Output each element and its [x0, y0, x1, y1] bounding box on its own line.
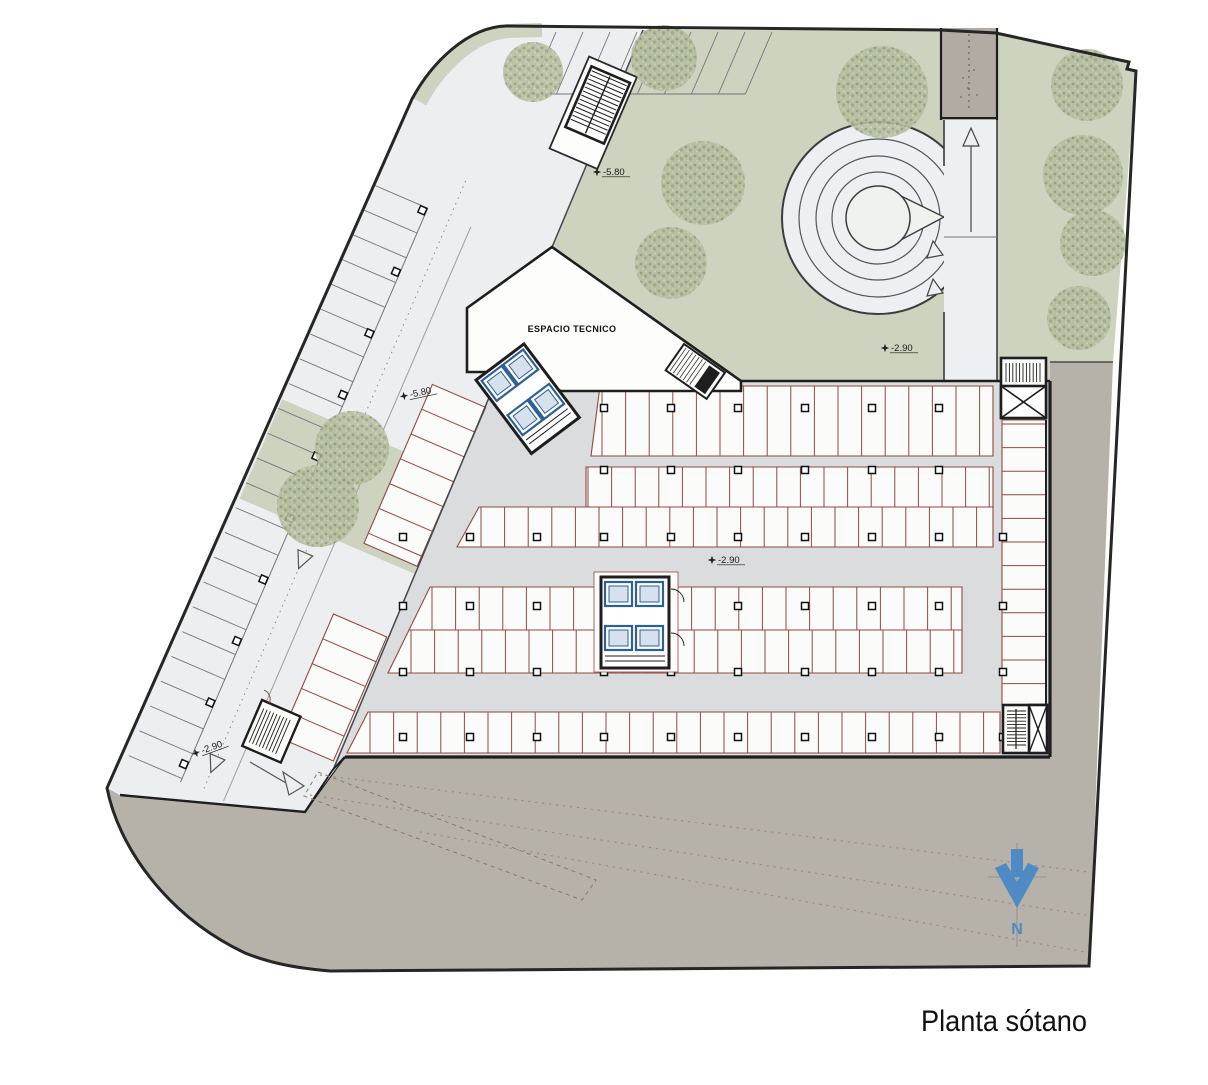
- tree: [503, 42, 563, 102]
- column-marker: [601, 467, 608, 474]
- tree: [1043, 135, 1123, 215]
- north-arrow-shaft: [1011, 849, 1023, 877]
- column-marker: [802, 603, 809, 610]
- column-marker: [802, 669, 809, 676]
- parking-band-row-2a: [586, 467, 993, 507]
- parking-band-row-bottom: [347, 712, 1000, 753]
- column-marker: [391, 267, 400, 276]
- column-marker: [400, 669, 407, 676]
- tree: [635, 227, 707, 299]
- column-marker: [735, 603, 742, 610]
- column-marker: [735, 467, 742, 474]
- column-marker: [400, 534, 407, 541]
- column-marker: [534, 734, 541, 741]
- column-marker: [668, 467, 675, 474]
- tree: [661, 141, 745, 225]
- column-marker: [869, 603, 876, 610]
- column-marker: [936, 405, 943, 412]
- column-marker: [400, 734, 407, 741]
- column-marker: [668, 734, 675, 741]
- column-marker: [1000, 669, 1007, 676]
- technical-room-label: ESPACIO TECNICO: [528, 324, 617, 334]
- column-marker: [601, 734, 608, 741]
- column-marker: [232, 636, 241, 645]
- column-marker: [1000, 603, 1007, 610]
- column-marker: [869, 467, 876, 474]
- elevation-value: -2.90: [891, 343, 913, 354]
- column-marker: [534, 603, 541, 610]
- elevation-value: -5.80: [603, 167, 625, 178]
- column-marker: [467, 734, 474, 741]
- column-marker: [467, 603, 474, 610]
- parking-band-row-3a: [409, 587, 962, 630]
- parking-band-row-right: [1002, 420, 1046, 705]
- column-marker: [735, 734, 742, 741]
- column-marker: [601, 405, 608, 412]
- column-marker: [259, 575, 268, 584]
- basement-floor-plan: ESPACIO TECNICO: [0, 0, 1208, 1080]
- column-marker: [802, 405, 809, 412]
- column-marker: [936, 669, 943, 676]
- column-marker: [735, 669, 742, 676]
- column-marker: [534, 669, 541, 676]
- column-marker: [668, 534, 675, 541]
- floor-plan-page: ESPACIO TECNICO: [0, 0, 1208, 1080]
- column-marker: [400, 603, 407, 610]
- tree: [1060, 210, 1126, 276]
- column-marker: [802, 734, 809, 741]
- column-marker: [418, 206, 427, 215]
- column-marker: [869, 734, 876, 741]
- column-marker: [534, 534, 541, 541]
- column-marker: [601, 534, 608, 541]
- column-marker: [802, 467, 809, 474]
- column-marker: [936, 603, 943, 610]
- column-marker: [467, 669, 474, 676]
- column-marker: [467, 534, 474, 541]
- column-marker: [338, 390, 347, 399]
- tree: [1047, 286, 1111, 350]
- column-marker: [869, 534, 876, 541]
- column-marker: [735, 534, 742, 541]
- column-marker: [1000, 534, 1007, 541]
- plan-title: Planta sótano: [921, 1005, 1087, 1038]
- tree: [836, 46, 928, 138]
- tree: [631, 25, 697, 91]
- north-label: N: [1011, 921, 1023, 938]
- ramp-island: [846, 186, 910, 250]
- column-marker: [802, 534, 809, 541]
- elevator-core-center: [594, 572, 684, 672]
- column-marker: [206, 698, 215, 707]
- stair-core-southeast: [1003, 705, 1047, 753]
- elevation-value: -2.90: [718, 555, 740, 566]
- column-marker: [936, 467, 943, 474]
- column-marker: [936, 534, 943, 541]
- column-marker: [365, 329, 374, 338]
- column-marker: [735, 405, 742, 412]
- column-marker: [179, 760, 188, 769]
- column-marker: [668, 405, 675, 412]
- stair-core-northeast: [1001, 358, 1046, 418]
- column-marker: [869, 669, 876, 676]
- tree: [277, 465, 359, 547]
- column-marker: [869, 405, 876, 412]
- column-marker: [936, 734, 943, 741]
